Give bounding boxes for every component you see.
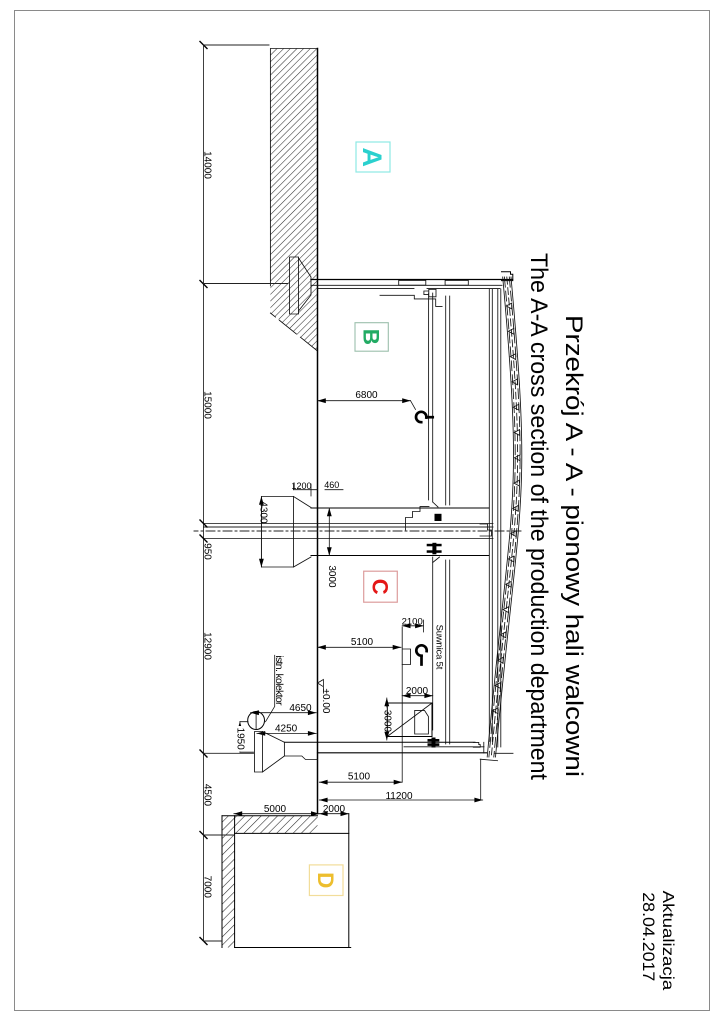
svg-text:1950: 1950: [235, 728, 246, 751]
svg-text:12900: 12900: [202, 632, 213, 660]
svg-text:1200: 1200: [291, 481, 311, 491]
svg-text:3000: 3000: [382, 710, 393, 733]
svg-text:4500: 4500: [202, 784, 213, 807]
svg-text:Suwnica 5t: Suwnica 5t: [434, 625, 445, 670]
svg-text:5100: 5100: [348, 772, 371, 783]
svg-text:5100: 5100: [351, 637, 374, 648]
svg-text:C: C: [368, 579, 393, 595]
svg-text:5000: 5000: [264, 804, 287, 815]
svg-text:B: B: [359, 329, 384, 345]
svg-text:3000: 3000: [326, 565, 337, 588]
svg-text:4300: 4300: [258, 501, 269, 524]
svg-text:6800: 6800: [355, 390, 378, 401]
svg-text:Aktualizacja: Aktualizacja: [659, 891, 676, 991]
svg-text:2000: 2000: [323, 804, 346, 815]
svg-text:4650: 4650: [289, 703, 312, 714]
svg-text:2100: 2100: [402, 616, 423, 627]
svg-text:14000: 14000: [202, 151, 213, 179]
svg-text:D: D: [313, 872, 338, 888]
svg-text:A: A: [357, 148, 387, 168]
svg-text:The A-A cross section of the p: The A-A cross section of the production …: [525, 253, 552, 780]
svg-text:Przekrój A - A - pionowy hali: Przekrój A - A - pionowy hali walcowni: [560, 315, 587, 777]
svg-text:±0.00: ±0.00: [320, 689, 331, 714]
svg-text:950: 950: [202, 543, 213, 560]
svg-text:2000: 2000: [406, 686, 429, 697]
svg-text:4250: 4250: [275, 724, 298, 735]
svg-text:460: 460: [324, 480, 339, 490]
svg-text:11200: 11200: [385, 791, 413, 802]
svg-text:7000: 7000: [202, 876, 213, 899]
svg-text:15000: 15000: [202, 391, 213, 419]
svg-text:28.04.2017: 28.04.2017: [639, 892, 657, 981]
